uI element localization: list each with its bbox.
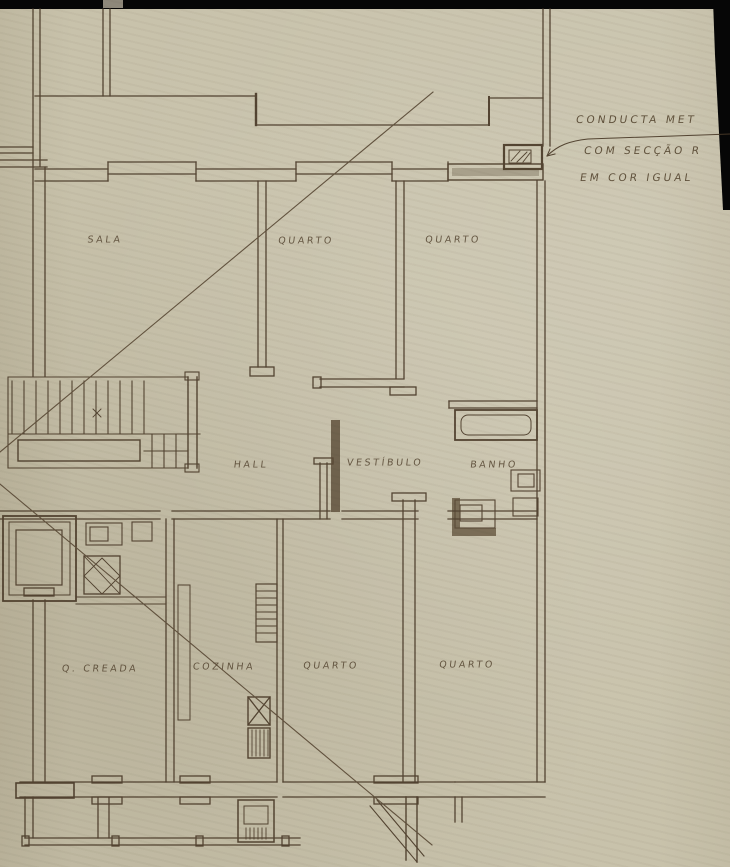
room-label-quarto-1: QUARTO (277, 236, 334, 247)
room-label-sala: SALA (87, 235, 123, 246)
scan-edge-notch (103, 0, 123, 8)
scanned-floorplan-page: SALA QUARTO QUARTO HALL VESTÍBULO BANHO … (0, 0, 730, 867)
room-label-cozinha: COZINHA (192, 662, 256, 673)
party-wall-vertical (543, 9, 550, 146)
room-label-vestibulo: VESTÍBULO (346, 458, 424, 469)
annotation-line-1: CONDUCTA MET (575, 114, 698, 126)
room-label-q-creada: Q. CREADA (61, 664, 139, 675)
annotation-line-2: COM SECÇÃO R (583, 145, 703, 157)
parapet-outline (35, 94, 543, 125)
sala-right-wall (250, 181, 274, 376)
laundry-tank (238, 800, 274, 842)
scan-edge-mask-right (713, 0, 730, 210)
room-label-banho: BANHO (469, 460, 518, 471)
top-exterior-wall (35, 162, 543, 181)
room-label-quarto-3: QUARTO (302, 661, 359, 672)
service-bath (76, 522, 166, 604)
upper-left-walls (0, 9, 110, 167)
room-label-quarto-2: QUARTO (424, 235, 481, 246)
quarto1-walls (313, 181, 416, 395)
bottom-right-corner (370, 782, 545, 862)
elevator-shaft (3, 516, 76, 601)
floorplan-linework (0, 0, 730, 867)
duct-box (504, 145, 542, 169)
room-label-hall: HALL (233, 460, 269, 471)
kitchen (166, 519, 283, 782)
right-exterior-wall (537, 181, 545, 782)
bathtub (449, 401, 537, 440)
banho-fixtures (452, 470, 540, 536)
annotation-line-3: EM COR IGUAL (579, 172, 694, 184)
left-exterior-wall (33, 167, 45, 782)
room-label-quarto-4: QUARTO (438, 660, 495, 671)
vestibule-wall-stub (331, 420, 340, 512)
